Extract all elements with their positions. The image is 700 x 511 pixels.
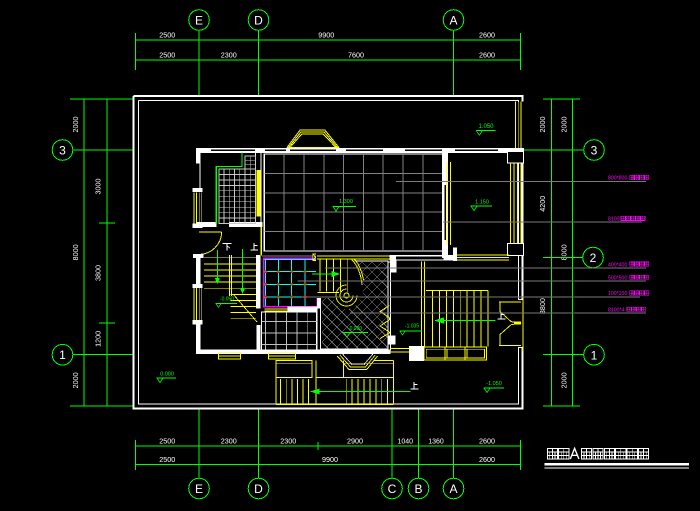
svg-text:2: 2 [590, 251, 597, 265]
svg-text:8000: 8000 [71, 244, 80, 260]
svg-text:3: 3 [591, 144, 598, 158]
svg-text:2500: 2500 [159, 437, 175, 446]
svg-text:1: 1 [591, 348, 598, 362]
svg-text:A: A [449, 482, 457, 496]
svg-text:100*100: 100*100 [608, 291, 627, 297]
svg-text:400*400: 400*400 [608, 262, 627, 268]
svg-text:1200: 1200 [94, 331, 103, 347]
svg-text:2600: 2600 [479, 455, 495, 464]
svg-text:8100: 8100 [608, 216, 620, 222]
svg-text:1.300: 1.300 [339, 199, 353, 205]
svg-text:E: E [195, 482, 203, 496]
svg-text:-0.050: -0.050 [220, 297, 234, 303]
svg-text:2000: 2000 [560, 117, 569, 133]
svg-text:-0.020: -0.020 [348, 326, 362, 332]
svg-text:9900: 9900 [322, 455, 338, 464]
svg-text:2000: 2000 [538, 117, 547, 133]
svg-text:3: 3 [59, 144, 66, 158]
svg-text:-1.050: -1.050 [486, 381, 502, 387]
svg-text:2300: 2300 [280, 437, 296, 446]
svg-text:1.050: 1.050 [478, 124, 494, 130]
svg-text:0.000: 0.000 [160, 372, 174, 378]
svg-text:2000: 2000 [71, 372, 80, 388]
svg-text:-1.035: -1.035 [405, 324, 419, 330]
svg-text:1040: 1040 [397, 439, 413, 446]
svg-text:C: C [388, 482, 397, 496]
svg-text:2500: 2500 [159, 455, 175, 464]
svg-text:1.150: 1.150 [475, 200, 489, 206]
svg-text:4200: 4200 [538, 196, 547, 212]
svg-text:1360: 1360 [428, 439, 444, 446]
svg-text:B: B [414, 482, 422, 496]
svg-text:1: 1 [59, 348, 66, 362]
svg-text:2600: 2600 [479, 51, 495, 60]
svg-text:A: A [449, 14, 457, 28]
svg-text:500*500: 500*500 [608, 275, 627, 281]
svg-text:2500: 2500 [159, 51, 175, 60]
svg-text:2300: 2300 [221, 437, 237, 446]
svg-text:2000: 2000 [560, 372, 569, 388]
svg-text:3000: 3000 [94, 179, 103, 195]
svg-text:2500: 2500 [159, 31, 175, 40]
svg-text:3800: 3800 [538, 298, 547, 314]
svg-text:2600: 2600 [479, 31, 495, 40]
svg-text:2000: 2000 [71, 117, 80, 133]
svg-text:8100*4: 8100*4 [608, 307, 625, 313]
svg-text:E: E [195, 14, 203, 28]
svg-text:2900: 2900 [347, 437, 363, 446]
svg-text:7600: 7600 [348, 51, 364, 60]
svg-text:3800: 3800 [94, 265, 103, 281]
svg-text:D: D [254, 482, 263, 496]
svg-text:800*800: 800*800 [608, 176, 627, 182]
svg-text:2300: 2300 [221, 51, 237, 60]
svg-text:D: D [254, 14, 263, 28]
svg-text:9900: 9900 [318, 31, 334, 40]
svg-text:2600: 2600 [479, 437, 495, 446]
